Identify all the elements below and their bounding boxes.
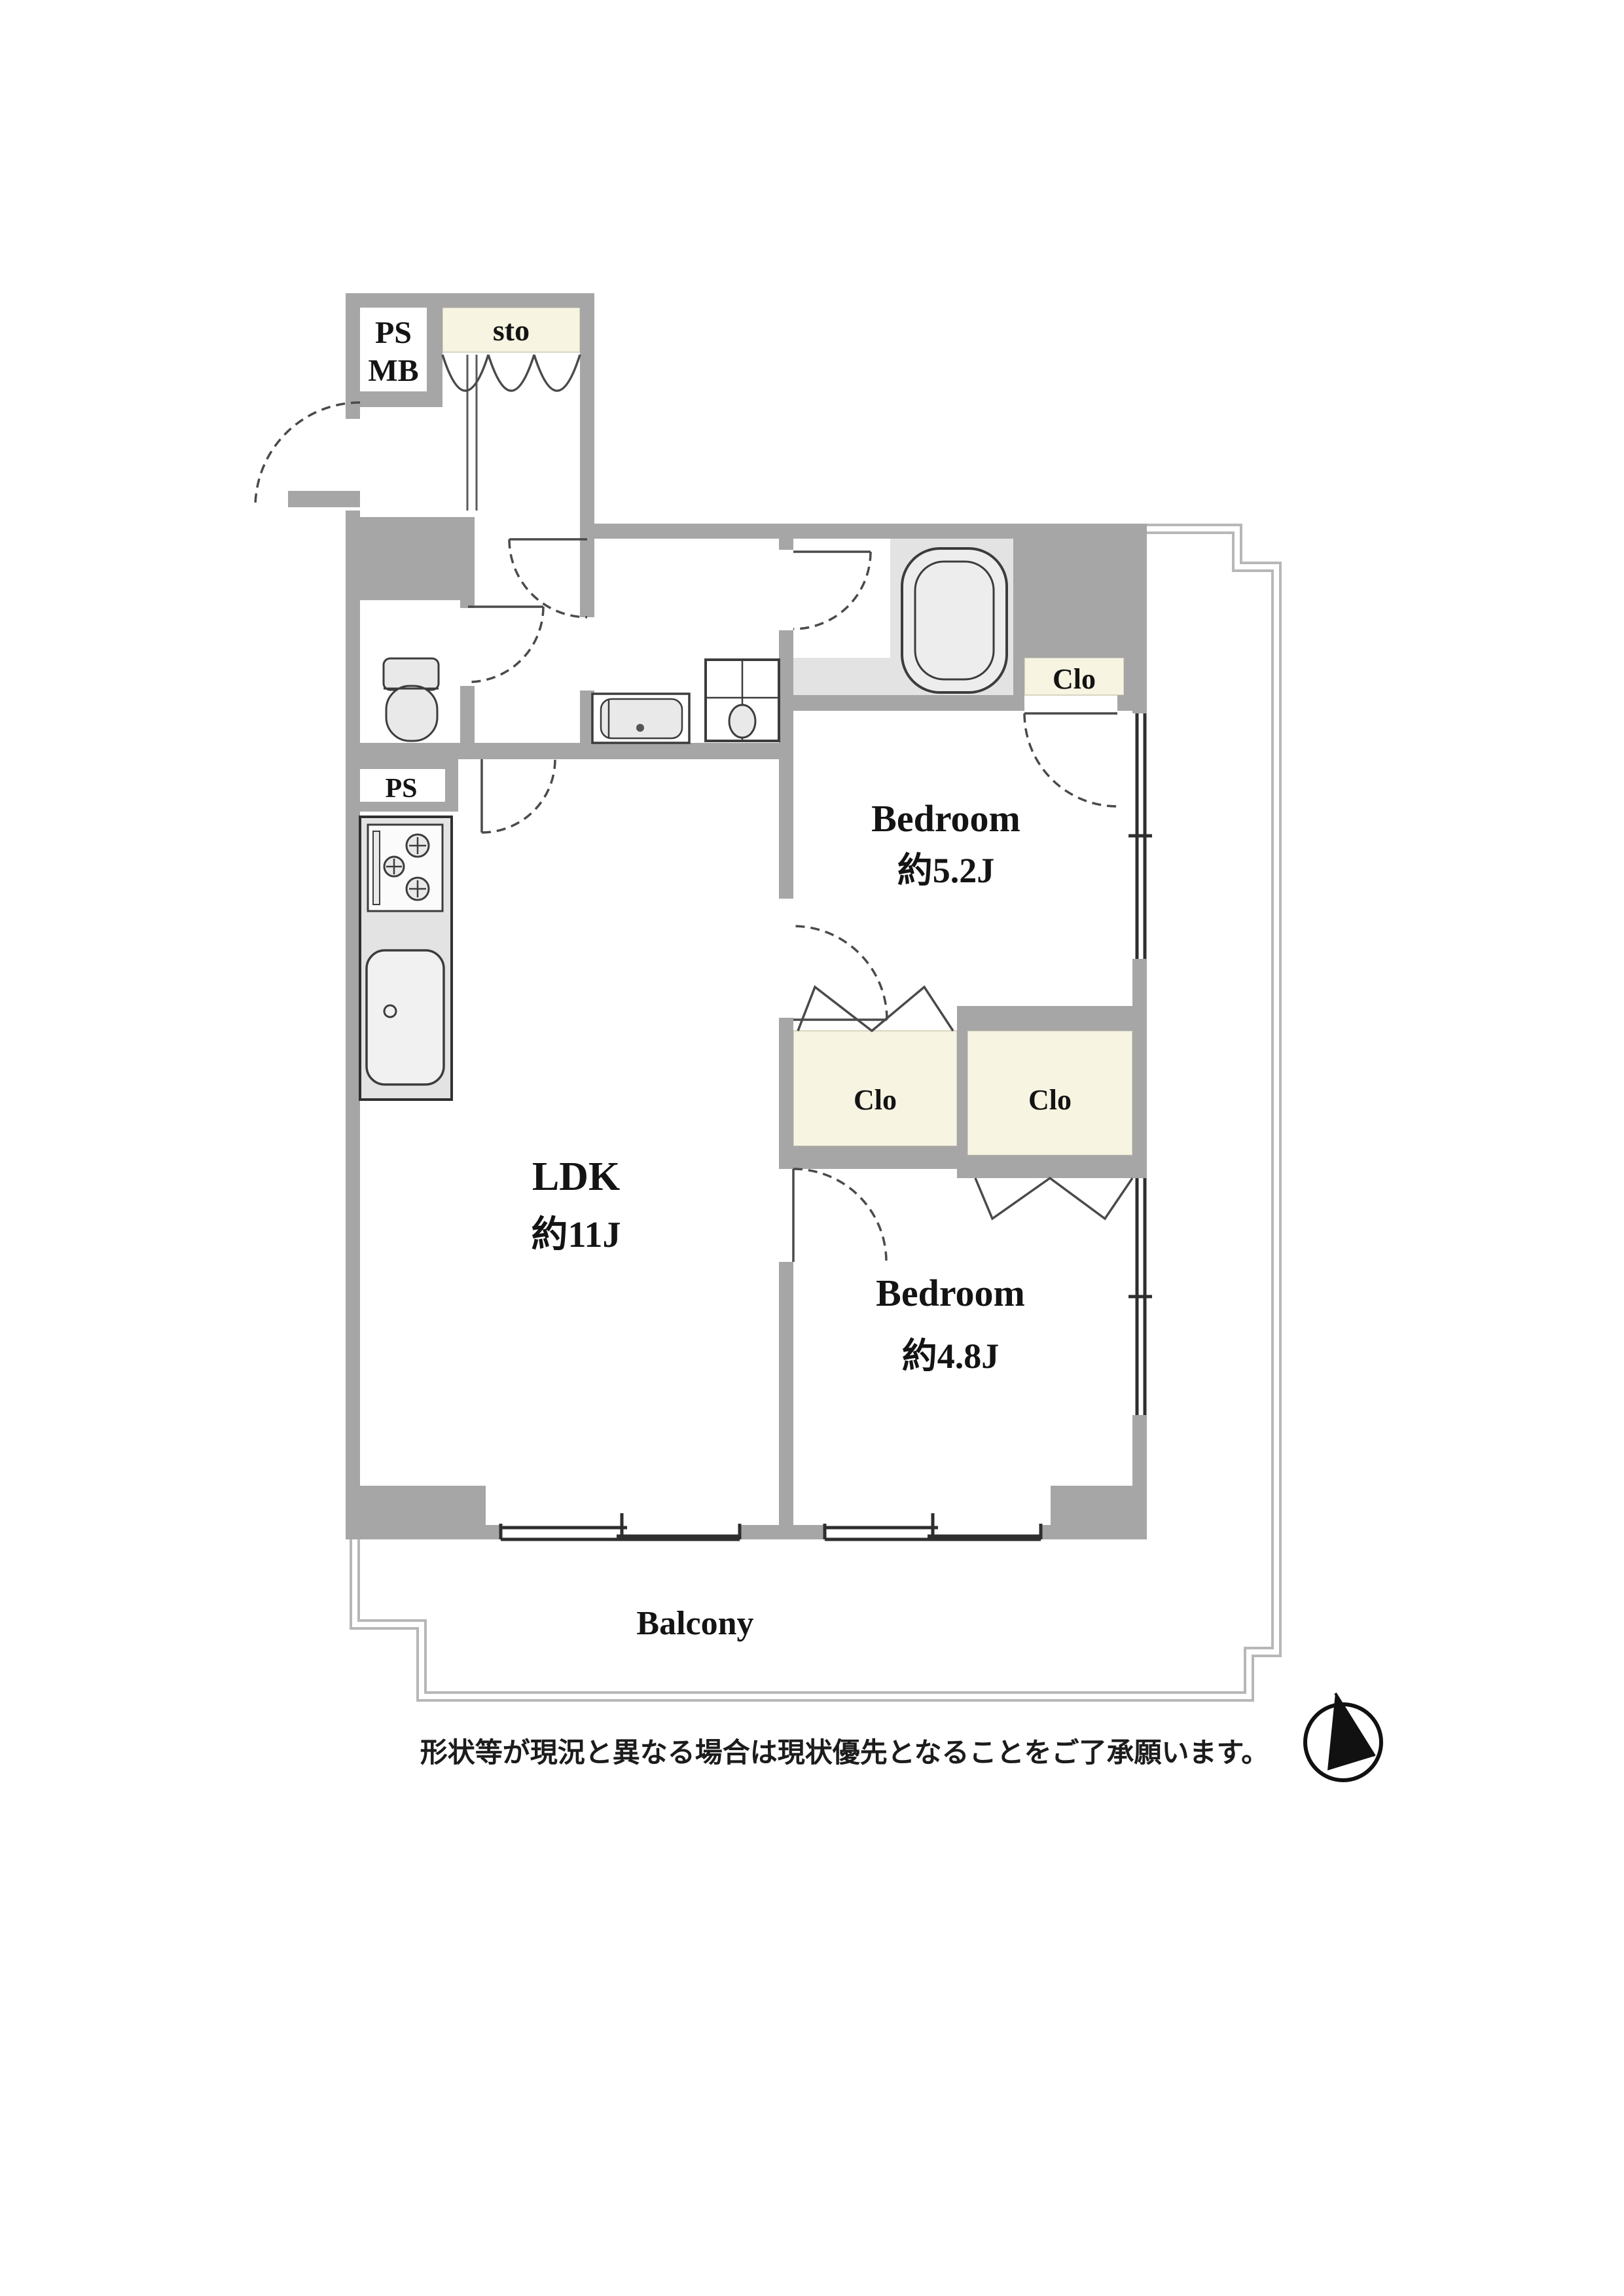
label-closet-bath: Clo: [1053, 663, 1096, 695]
label-balcony: Balcony: [636, 1605, 753, 1642]
label-storage: sto: [493, 314, 530, 347]
kitchen-sink: [367, 950, 444, 1085]
label-pipe-space-kitchen: PS: [385, 774, 417, 804]
label-ldk-area: 約11J: [532, 1215, 621, 1255]
washing-machine-pan: [706, 660, 779, 741]
label-ldk: LDK: [532, 1155, 620, 1199]
kitchen-counter: [360, 817, 452, 1100]
floor-plan: PS MB sto Clo Bedroom 約5.2J PS Clo Clo L…: [0, 0, 1624, 2296]
label-bedroom-upper: Bedroom: [871, 797, 1020, 840]
stove: [368, 825, 442, 911]
disclaimer-text: 形状等が現況と異なる場合は現状優先となることをご了承願います。: [420, 1737, 1269, 1768]
toilet: [384, 658, 439, 741]
label-pipe-space-top: PS: [375, 315, 412, 350]
label-closet-middle-left: Clo: [854, 1084, 897, 1116]
label-bedroom-lower-area: 約4.8J: [902, 1336, 1000, 1376]
label-closet-middle-right: Clo: [1028, 1084, 1072, 1116]
label-bedroom-upper-area: 約5.2J: [897, 851, 995, 890]
bathtub: [902, 548, 1007, 692]
label-meter-box: MB: [368, 353, 418, 388]
washbasin: [592, 694, 689, 743]
label-bedroom-lower: Bedroom: [876, 1272, 1025, 1314]
